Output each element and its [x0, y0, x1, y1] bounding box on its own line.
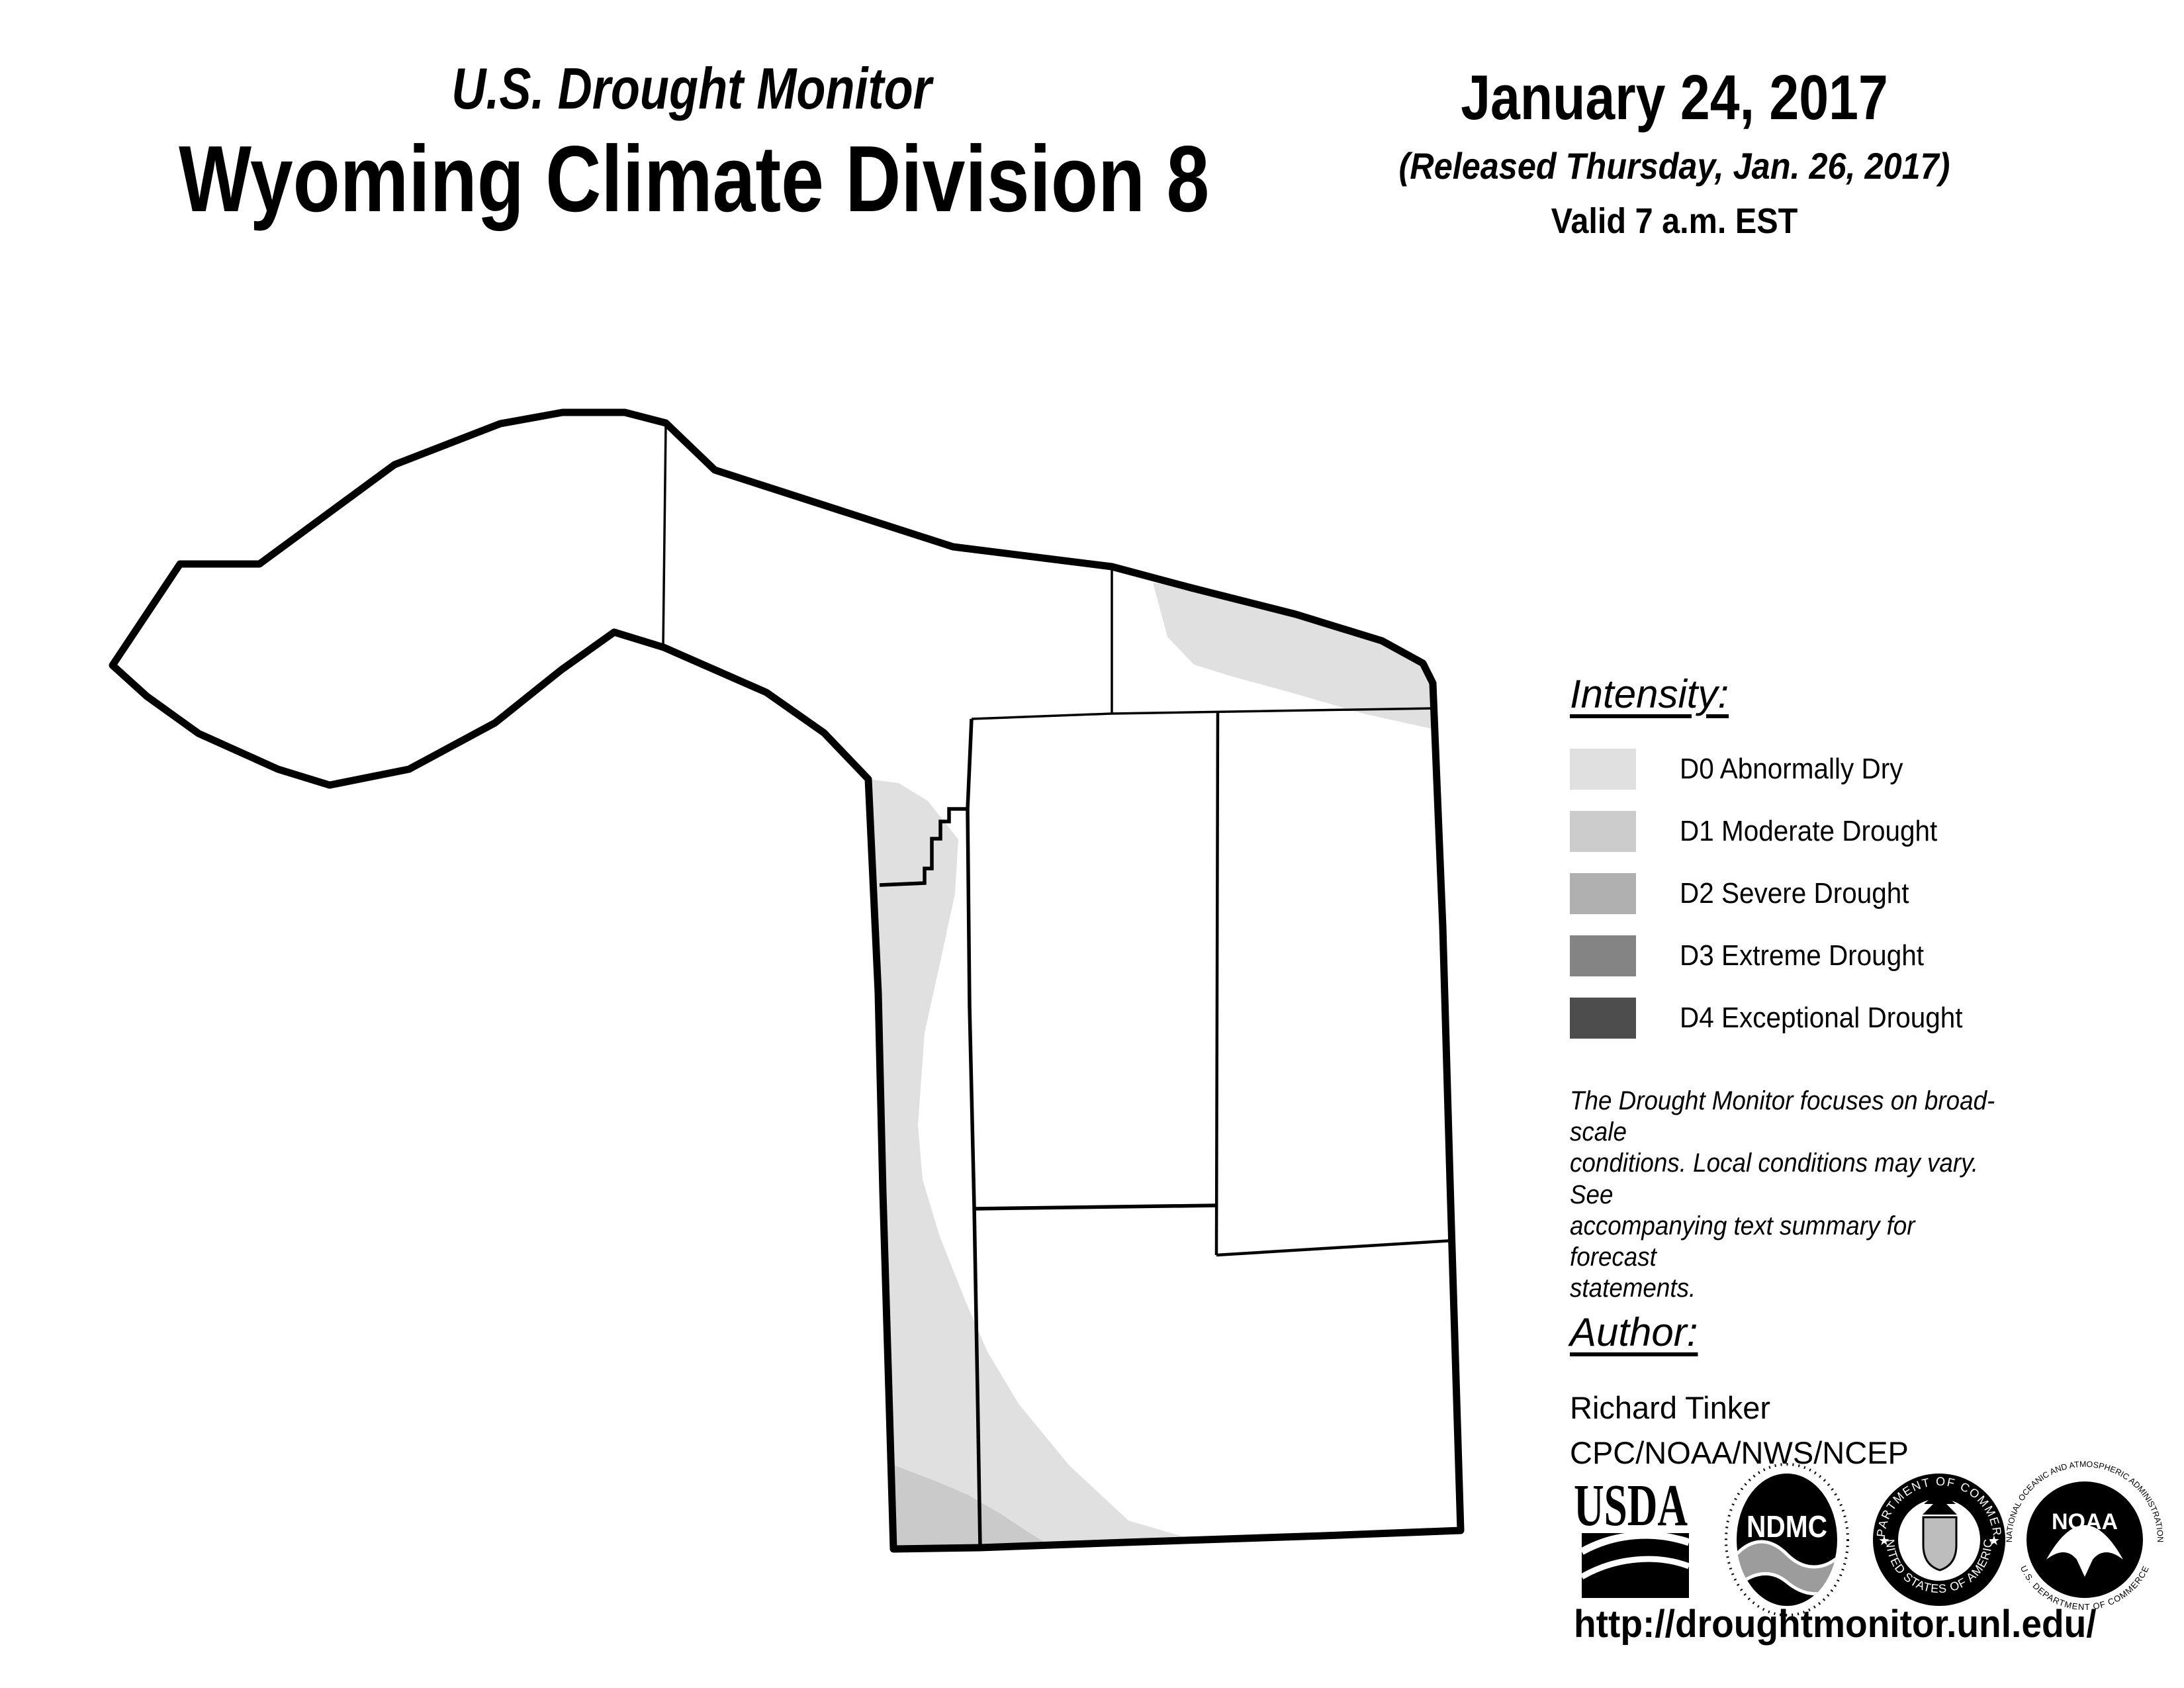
legend-swatch-d0: [1570, 749, 1636, 790]
author-name: Richard Tinker: [1570, 1385, 1909, 1430]
county-line-east-vertical: [1216, 712, 1218, 1255]
legend-swatch-d2: [1570, 873, 1636, 914]
legend-label-d0: D0 Abnormally Dry: [1680, 753, 1903, 786]
noaa-logo-text: NOAA: [2052, 1509, 2118, 1534]
legend-swatch-d4: [1570, 998, 1636, 1039]
author-heading: Author:: [1570, 1309, 1909, 1355]
legend-row-d2: D2 Severe Drought: [1570, 873, 1987, 914]
legend-label-d3: D3 Extreme Drought: [1680, 939, 1924, 972]
legend-row-d0: D0 Abnormally Dry: [1570, 749, 1987, 790]
drought-monitor-page: U.S. Drought Monitor Wyoming Climate Div…: [0, 0, 2184, 1688]
commerce-shield-icon: [1923, 1517, 1956, 1570]
commerce-star-left: ★: [1878, 1534, 1890, 1548]
legend-heading: Intensity:: [1570, 671, 1987, 717]
drought-monitor-url: http://droughtmonitor.unl.edu/: [1574, 1602, 2097, 1646]
intensity-legend: Intensity: D0 Abnormally Dry D1 Moderate…: [1570, 671, 1987, 1060]
disclaimer-text: The Drought Monitor focuses on broad-sca…: [1570, 1086, 1996, 1304]
legend-swatch-d1: [1570, 811, 1636, 852]
d0-area-west: [868, 779, 1185, 1549]
d0-area-northeast: [1153, 583, 1435, 729]
county-line-mid-horizontal: [974, 1205, 1216, 1209]
county-line-southeast-horizontal: [1216, 1241, 1453, 1255]
legend-row-d1: D1 Moderate Drought: [1570, 811, 1987, 852]
legend-label-d2: D2 Severe Drought: [1680, 877, 1909, 910]
division-outline: [113, 412, 1461, 1549]
legend-row-d4: D4 Exceptional Drought: [1570, 998, 1987, 1039]
noaa-seal: NATIONAL OCEANIC AND ATMOSPHERIC ADMINIS…: [2005, 1460, 2165, 1612]
county-line-arm-vertical: [663, 424, 666, 646]
author-block: Author: Richard Tinker CPC/NOAA/NWS/NCEP: [1570, 1309, 1909, 1476]
author-org: CPC/NOAA/NWS/NCEP: [1570, 1430, 1909, 1476]
usda-logo-text: USDA: [1574, 1473, 1688, 1538]
ndmc-logo-text: NDMC: [1747, 1509, 1827, 1544]
legend-row-d3: D3 Extreme Drought: [1570, 935, 1987, 976]
legend-label-d1: D1 Moderate Drought: [1680, 815, 1937, 848]
commerce-star-right: ★: [1988, 1534, 2000, 1548]
legend-swatch-d3: [1570, 935, 1636, 976]
legend-label-d4: D4 Exceptional Drought: [1680, 1002, 1963, 1035]
usda-logo: USDA: [1574, 1473, 1689, 1598]
ndmc-logo: NDMC: [1726, 1464, 1848, 1615]
